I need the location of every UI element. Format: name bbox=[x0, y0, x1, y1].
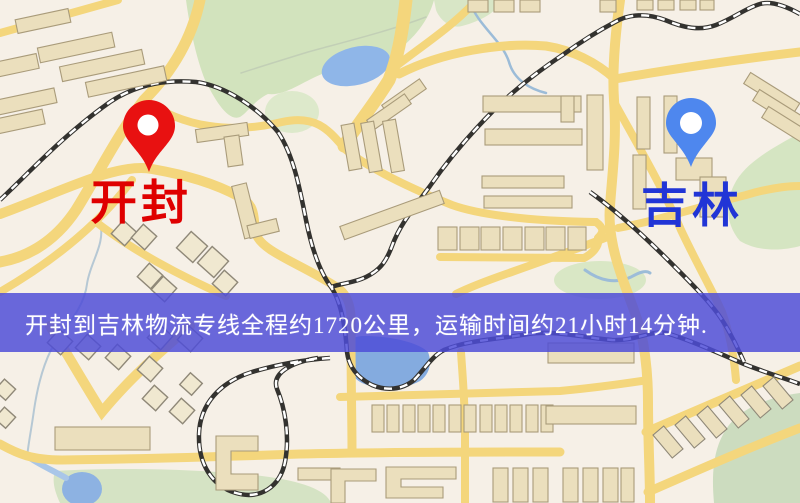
map-canvas[interactable]: 开封 吉林 开封到吉林物流专线全程约1720公里，运输时间约21小时14分钟. bbox=[0, 0, 800, 503]
origin-pin-icon[interactable] bbox=[123, 100, 175, 172]
map-layers: 开封 吉林 bbox=[0, 0, 800, 503]
destination-pin-icon[interactable] bbox=[666, 98, 716, 167]
destination-label: 吉林 bbox=[641, 179, 743, 232]
origin-label: 开封 bbox=[90, 176, 192, 229]
route-banner: 开封到吉林物流专线全程约1720公里，运输时间约21小时14分钟. bbox=[0, 293, 800, 352]
route-banner-text: 开封到吉林物流专线全程约1720公里，运输时间约21小时14分钟. bbox=[0, 306, 708, 340]
